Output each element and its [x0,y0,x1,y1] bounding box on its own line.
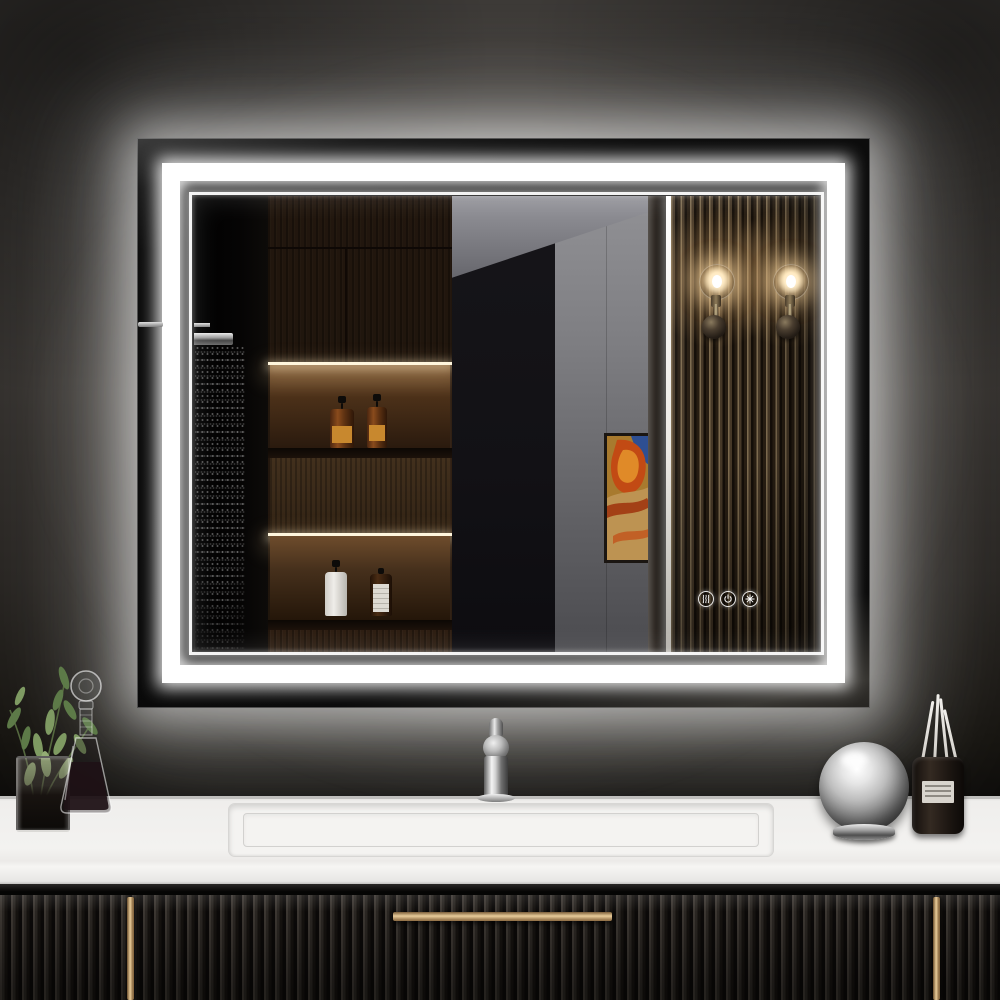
shower-arm-reflection [138,322,163,327]
touch-control-panel [698,591,762,609]
sphere-highlight [841,752,867,768]
led-vanity-mirror [137,138,870,708]
diffuser-label [922,781,954,803]
faucet-body [484,756,508,798]
sphere-stand [833,824,895,840]
rectangular-sink [228,803,774,857]
inner-led-line [189,192,824,655]
right-door-handle [933,897,940,1000]
sink-basin [243,813,759,847]
bathroom-scene [0,0,1000,1000]
glass-decanter [56,660,116,824]
reed-diffuser-bottle [912,757,964,834]
fluted-vanity-cabinet [0,895,1000,1000]
faucet-base [477,794,515,802]
left-door-handle [127,897,134,1000]
center-drawer-handle [393,912,612,921]
color-temperature-icon [742,591,758,607]
counter-shadow [0,884,1000,895]
chrome-faucet [476,712,516,802]
chrome-sphere-ornament [819,742,909,832]
power-icon [720,591,736,607]
defogger-icon [698,591,714,607]
